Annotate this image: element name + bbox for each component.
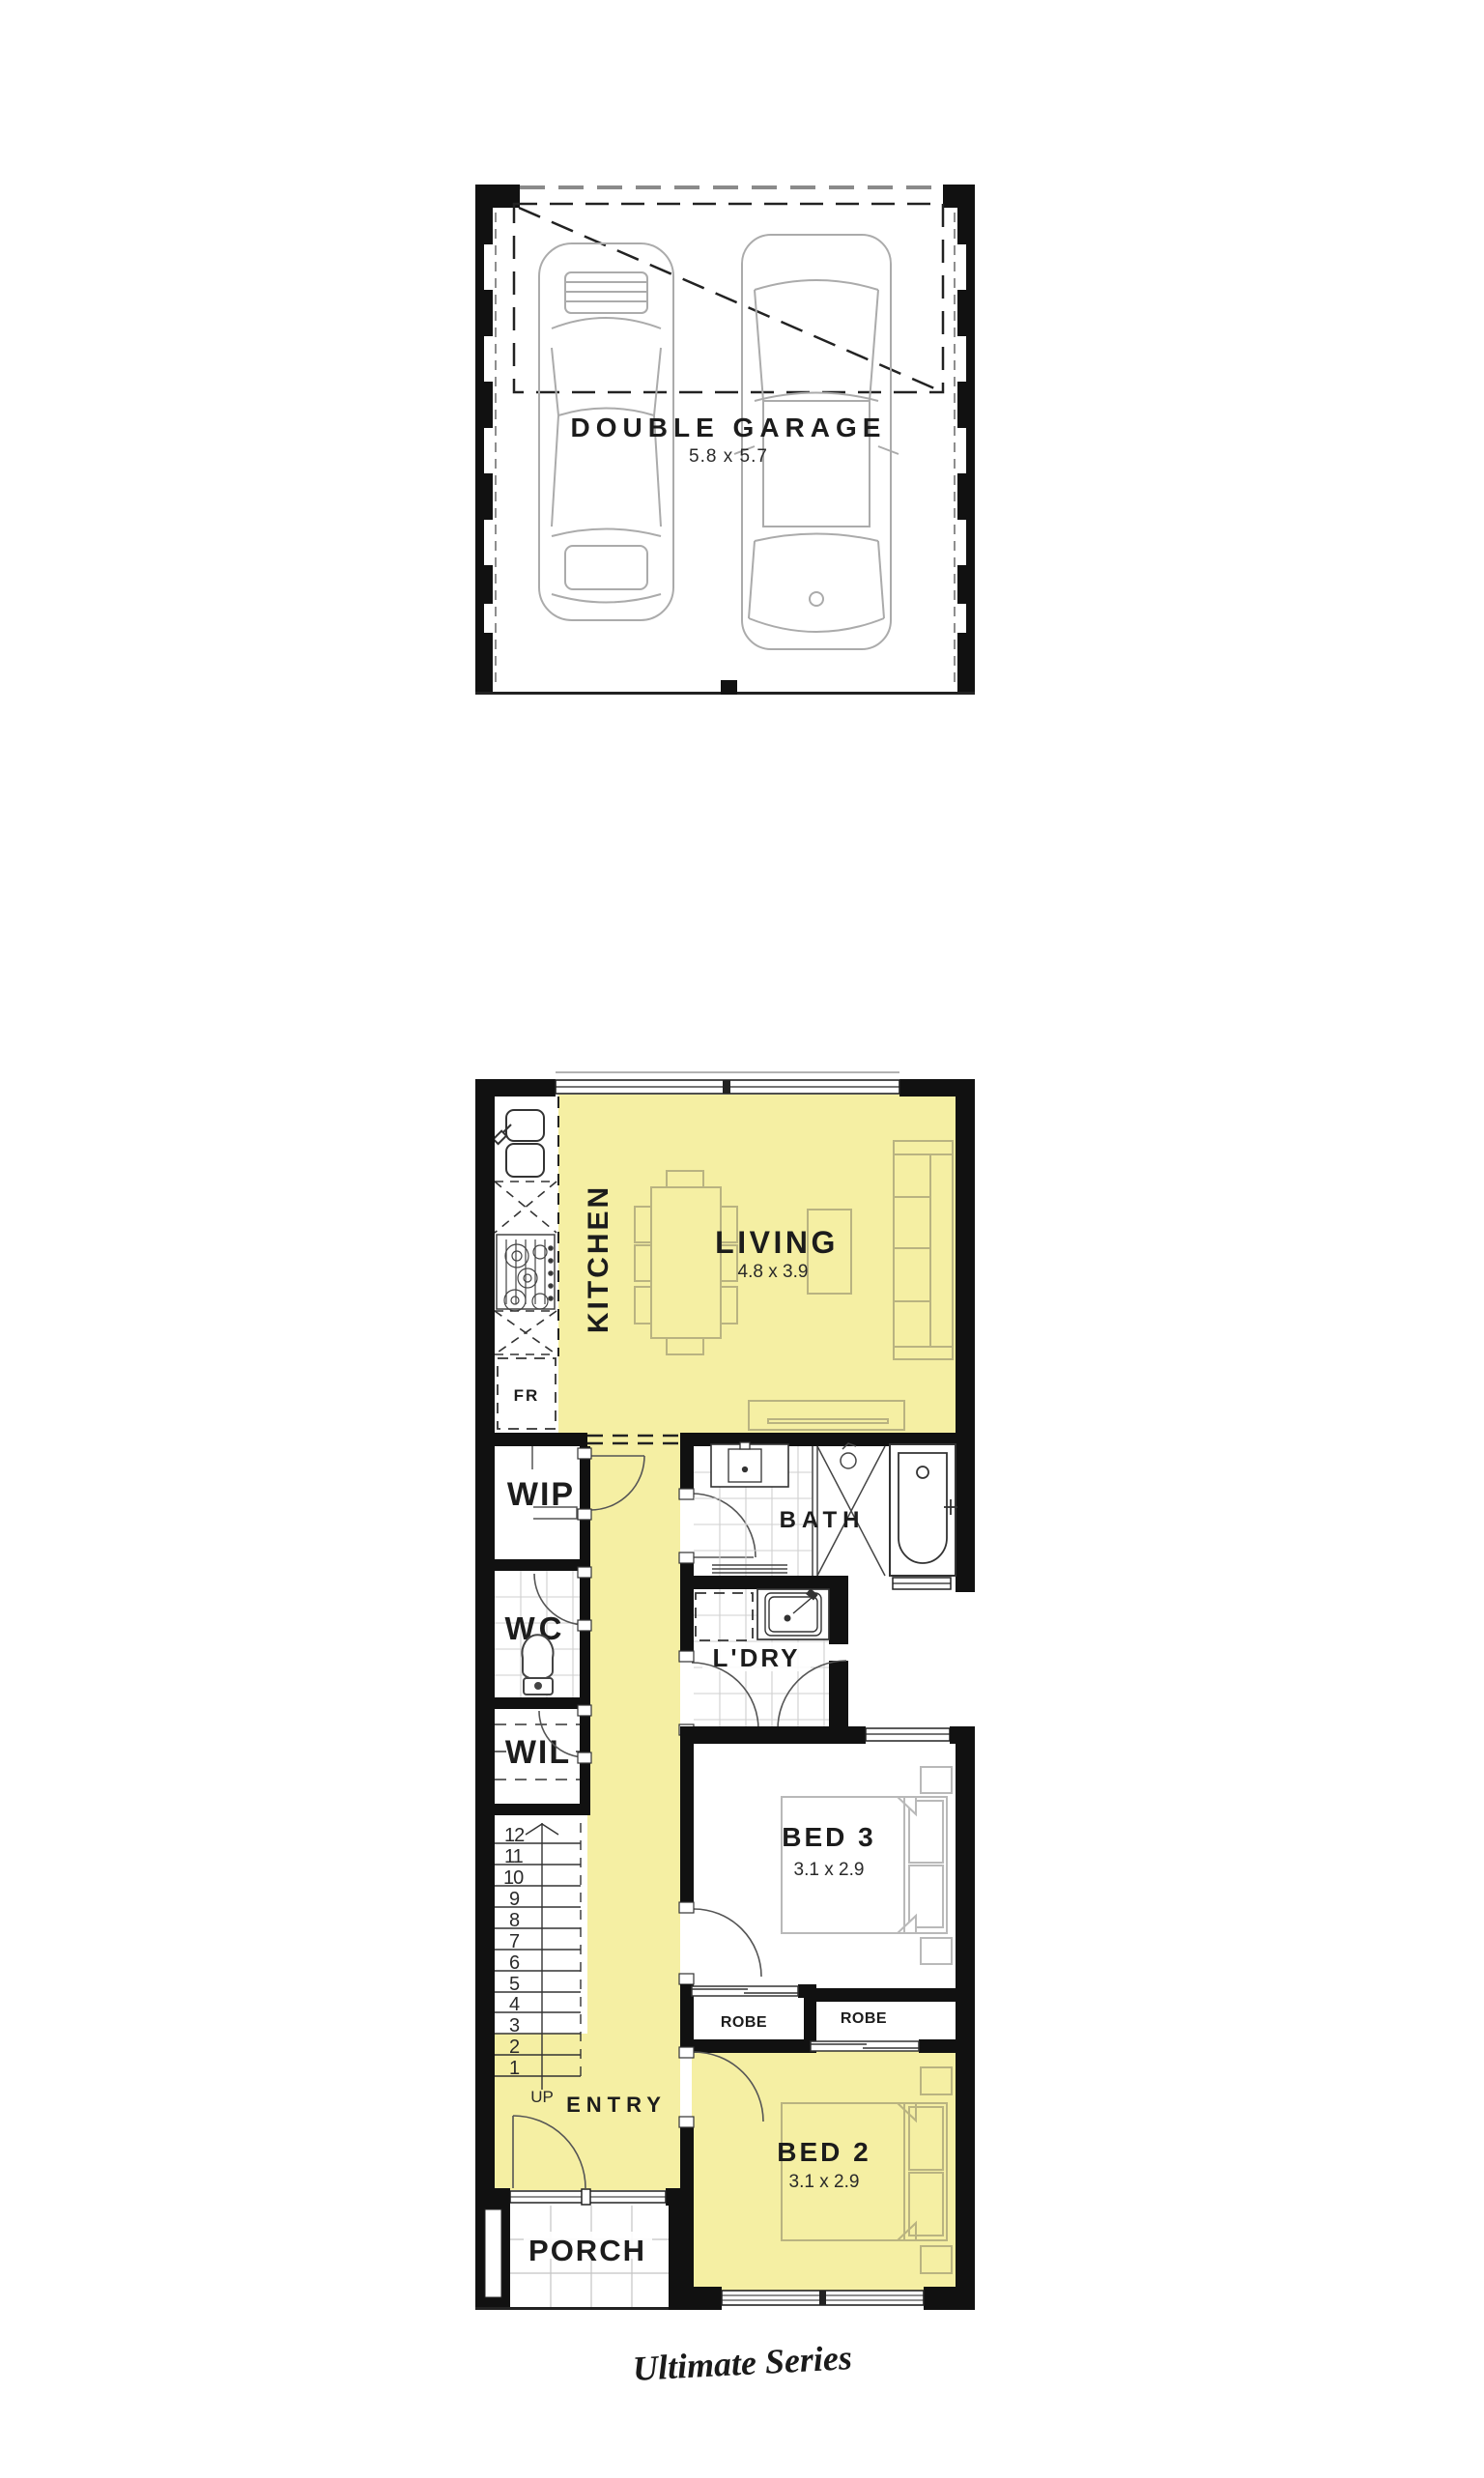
svg-text:5.8 x 5.7: 5.8 x 5.7 <box>689 446 768 467</box>
svg-text:ROBE: ROBE <box>721 2014 767 2031</box>
svg-text:5: 5 <box>509 1974 520 1995</box>
svg-text:ROBE: ROBE <box>841 2010 887 2027</box>
svg-text:4: 4 <box>509 1994 520 2015</box>
svg-text:KITCHEN: KITCHEN <box>583 1184 614 1333</box>
svg-text:3.1 x 2.9: 3.1 x 2.9 <box>789 2172 860 2192</box>
svg-text:LIVING: LIVING <box>715 1225 839 1260</box>
svg-text:PORCH: PORCH <box>528 2234 646 2267</box>
svg-text:3.1 x 2.9: 3.1 x 2.9 <box>794 1860 865 1880</box>
svg-text:6: 6 <box>509 1952 520 1974</box>
svg-text:11: 11 <box>504 1846 524 1867</box>
svg-text:WIP: WIP <box>507 1476 575 1513</box>
svg-text:BED 3: BED 3 <box>782 1822 875 1852</box>
svg-text:3: 3 <box>509 2015 520 2037</box>
svg-text:2: 2 <box>509 2037 520 2058</box>
svg-text:DOUBLE GARAGE: DOUBLE GARAGE <box>571 413 887 442</box>
svg-text:4.8 x 3.9: 4.8 x 3.9 <box>738 1262 809 1282</box>
svg-text:BED 2: BED 2 <box>777 2137 870 2167</box>
svg-text:1: 1 <box>509 2058 520 2079</box>
svg-text:UP: UP <box>530 2088 554 2106</box>
svg-text:BATH: BATH <box>780 1507 866 1533</box>
svg-text:WIL: WIL <box>505 1734 571 1771</box>
svg-text:9: 9 <box>509 1889 520 1910</box>
svg-text:7: 7 <box>509 1931 520 1952</box>
svg-text:ENTRY: ENTRY <box>566 2093 667 2117</box>
svg-text:FR: FR <box>514 1386 540 1405</box>
svg-text:10: 10 <box>503 1867 524 1889</box>
svg-text:8: 8 <box>509 1910 520 1931</box>
svg-text:L'DRY: L'DRY <box>713 1643 801 1672</box>
svg-text:12: 12 <box>504 1825 525 1846</box>
